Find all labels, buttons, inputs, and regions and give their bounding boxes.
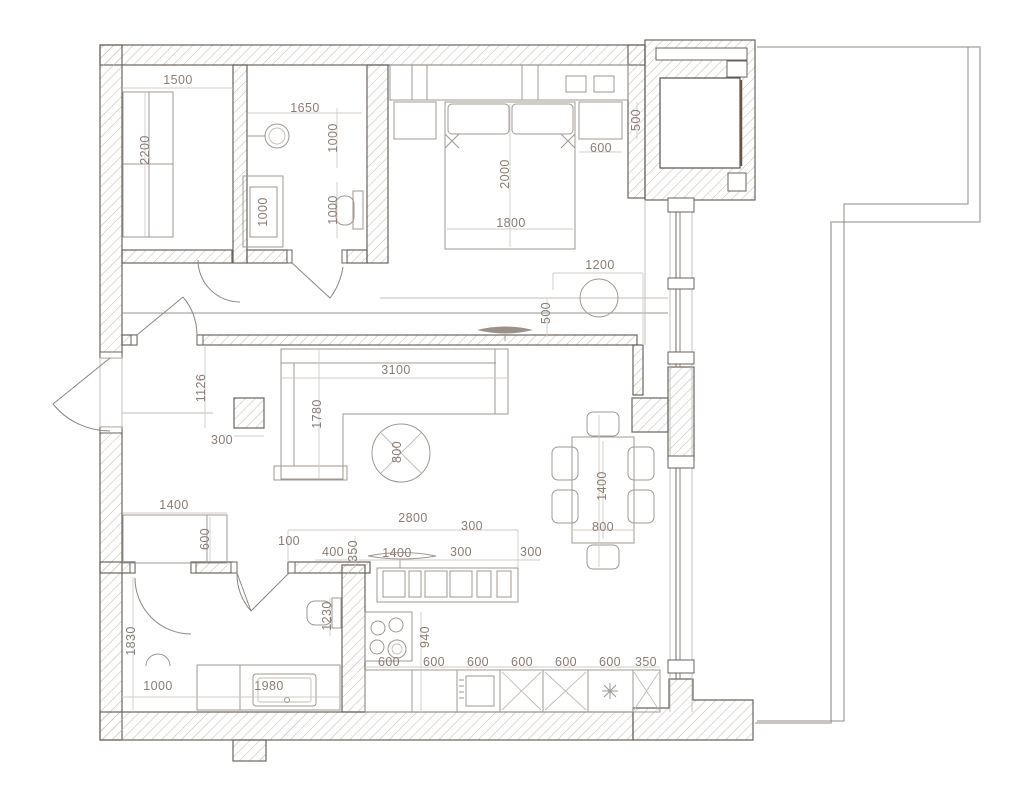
dim-sofa-length: 3100: [381, 363, 410, 377]
wall-pier-below: [233, 740, 266, 761]
burner-3: [370, 640, 384, 654]
dim-kitchen-400: 400: [322, 545, 344, 559]
fridge-snowflake-icon: [602, 683, 618, 699]
dim-kitchen-end: 350: [635, 655, 657, 669]
interior-walls: [100, 65, 694, 712]
window-sill-tick-4: [668, 456, 694, 468]
dim-bed-length: 2000: [498, 159, 512, 188]
wall-wardrobe-bath: [233, 65, 247, 263]
dim-coffee-table: 800: [390, 441, 404, 463]
wall-bath2-kitchen: [342, 565, 365, 712]
blanket-fold-left: [445, 134, 459, 148]
dim-bath2-vanity: 1980: [254, 679, 283, 693]
dim-cab-3: 600: [467, 655, 489, 669]
dim-bath1-wc: 1000: [326, 195, 340, 224]
dim-bath2-wc: 1230: [320, 601, 334, 630]
island-stool-1: [383, 571, 405, 597]
oven: [466, 676, 494, 706]
wall-wardrobe-bottom: [122, 250, 232, 263]
dim-bath1-washer: 1000: [256, 197, 270, 226]
hall-door-leaf: [137, 297, 183, 335]
dim-kitchen-offset: 100: [278, 534, 300, 548]
island-stool-4: [450, 571, 472, 597]
kitchen-door-jamb-right: [288, 562, 295, 573]
entry-jamb-top: [100, 352, 122, 358]
pillow-right: [512, 104, 573, 134]
sofa-armrest-right: [495, 349, 508, 414]
hall-door-jamb-right: [197, 335, 203, 345]
burner-4-inner: [392, 644, 402, 654]
window-sill-tick-5: [668, 660, 694, 673]
shaft-notch: [727, 61, 747, 77]
wall-bath-bottom-west: [247, 250, 287, 263]
wall-living-divider: [198, 335, 637, 345]
bathroom1: [243, 124, 363, 247]
bath2-jamb-left: [130, 562, 135, 573]
hall-door-jamb-left: [131, 335, 137, 345]
dim-cab-6: 600: [599, 655, 621, 669]
dim-nightstand: 600: [590, 141, 612, 155]
dim-tv-gap: 500: [539, 302, 553, 324]
wardrobe-door-arc: [198, 260, 240, 302]
island-stool-5: [477, 571, 491, 597]
oven-vents: [459, 680, 464, 698]
dim-bath1-width: 1650: [290, 101, 319, 115]
balcony-inner-line: [757, 47, 968, 721]
dim-hall-width: 1126: [194, 374, 208, 402]
dim-bed-width: 1800: [496, 216, 525, 230]
entry-door-leaf: [53, 358, 110, 404]
dim-kitchen-350: 350: [346, 540, 360, 562]
dim-bath1-niche: 1000: [326, 123, 340, 152]
chair-bottom: [587, 545, 619, 569]
shaft-top-cell: [656, 48, 747, 60]
island-stool-6: [497, 571, 511, 597]
bath1-door: [292, 263, 343, 298]
dim-kitchen-300-top: 300: [461, 519, 483, 533]
dim-kitchen-depth: 940: [418, 626, 432, 648]
shaft-bottom-cell: [728, 173, 746, 191]
dim-hall-column: 300: [211, 433, 233, 447]
dim-wardrobe-depth: 2200: [138, 135, 152, 164]
sofa-armrest-bottom: [274, 466, 347, 480]
burner-1: [371, 621, 385, 635]
dim-wardrobe-width: 1500: [163, 73, 192, 87]
bedroom: [390, 65, 628, 317]
kitchen: [365, 553, 660, 713]
bath2-jamb-right: [191, 562, 196, 573]
dim-kitchen-300-right: 300: [520, 545, 542, 559]
blanket-fold-right: [561, 134, 575, 148]
sink-unit-x: [502, 672, 541, 710]
wall-bath-bedroom: [367, 65, 388, 263]
wall-top: [100, 45, 645, 65]
balcony-outer-line: [755, 47, 980, 723]
kitchen-door-leaf-left: [237, 573, 251, 611]
chair-left-2: [552, 490, 578, 523]
dim-ottoman: 1200: [585, 258, 614, 272]
entry-threshold: [100, 358, 122, 427]
tv: [477, 327, 533, 334]
dim-kitchen-island: 1400: [382, 546, 411, 560]
chair-top: [587, 412, 619, 436]
bedroom-wardrobe-box2: [594, 76, 614, 92]
bedroom-wardrobe: [390, 65, 628, 100]
dim-closet-depth: 600: [198, 528, 212, 550]
hall-column: [234, 398, 264, 428]
dim-cab-5: 600: [555, 655, 577, 669]
dim-dining-length: 1400: [595, 471, 609, 500]
chair-left-1: [552, 447, 578, 480]
wall-living-return: [633, 345, 643, 395]
chair-right-1: [628, 447, 654, 480]
bath2-door-arc: [135, 578, 191, 634]
shower-drain: [146, 654, 170, 666]
dim-nightstand-depth: 500: [629, 109, 643, 131]
dim-kitchen-run: 2800: [398, 511, 427, 525]
pillow-left: [448, 104, 509, 134]
window-sill-tick-2: [668, 278, 694, 289]
window-pier-flange: [632, 398, 668, 432]
dim-dining-width: 800: [592, 520, 614, 534]
wall-bath2-top-mid: [191, 562, 232, 573]
dim-kitchen-300-left: 300: [450, 545, 472, 559]
island-stool-2: [409, 571, 421, 597]
dim-cab-4: 600: [511, 655, 533, 669]
burner-2: [389, 618, 403, 632]
dim-sofa-depth: 1780: [310, 399, 324, 428]
bath1-jamb-right: [342, 250, 347, 263]
entry-jamb-bottom: [100, 427, 122, 433]
kitchen-door-jamb-left: [231, 562, 237, 573]
dim-bath2-shower: 1000: [143, 679, 172, 693]
floor-plan-drawing: 1500 2200 1650 1000 1000 1000 2000 1800 …: [0, 0, 1034, 788]
dimension-labels: 1500 2200 1650 1000 1000 1000 2000 1800 …: [124, 73, 657, 693]
dim-bath2-depth: 1830: [124, 626, 138, 655]
nightstand-right: [579, 102, 622, 139]
shaft: [645, 40, 755, 200]
end-unit-x: [634, 672, 659, 710]
chair-right-2: [628, 490, 654, 523]
window-pier-bar: [668, 367, 694, 460]
dishwasher-x: [545, 672, 586, 710]
dim-cab-2: 600: [423, 655, 445, 669]
bath1-jamb-left: [287, 250, 292, 263]
nightstand-left: [394, 102, 436, 139]
dim-cab-1: 600: [378, 655, 400, 669]
balcony-outline: [755, 47, 980, 723]
doors: [53, 250, 347, 634]
wall-bath-bottom-east: [347, 250, 367, 263]
hall-door-arc: [183, 297, 197, 335]
floor-plan-canvas: 1500 2200 1650 1000 1000 1000 2000 1800 …: [0, 0, 1034, 788]
island-stool-3: [425, 571, 447, 597]
window-sill-tick-3: [668, 352, 694, 364]
wall-bottom: [100, 712, 633, 740]
shaft-main-cell: [660, 78, 740, 168]
window-sill-tick-1: [668, 198, 694, 212]
bathroom2: [146, 598, 341, 710]
wall-left-lower: [100, 427, 122, 740]
wall-bottom-step: [633, 679, 753, 740]
wall-left-upper: [100, 45, 122, 358]
bedroom-wardrobe-box1: [566, 76, 586, 92]
dim-closet-width: 1400: [159, 498, 188, 512]
basin-inner: [269, 128, 285, 144]
kitchen-door-leaf-right: [251, 573, 289, 611]
